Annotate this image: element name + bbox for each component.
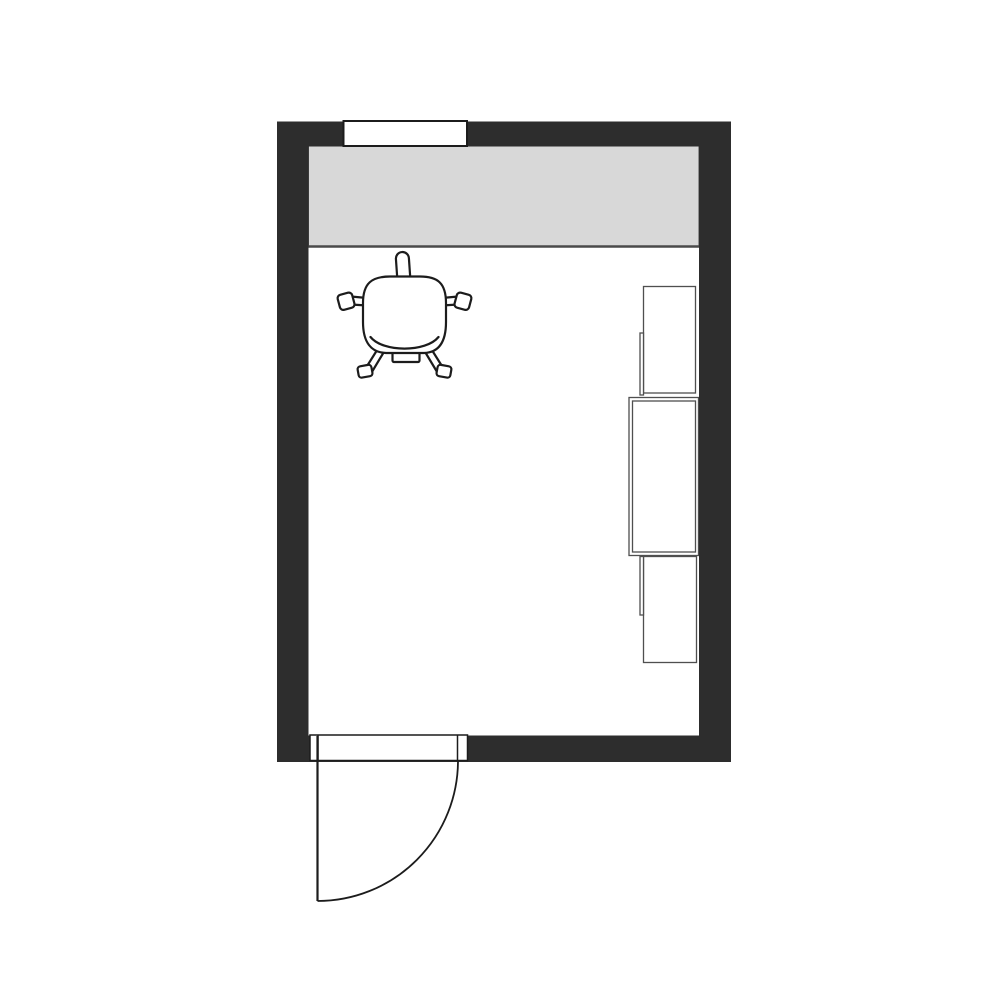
cabinet-lower[interactable]	[640, 557, 697, 663]
counter-surface	[309, 146, 700, 247]
wall-right	[699, 122, 731, 763]
counter-worktop[interactable]	[309, 146, 700, 247]
door-frame	[310, 735, 468, 761]
door-swing-arc	[318, 761, 459, 902]
cabinet-upper[interactable]	[640, 287, 696, 396]
floor-plan-page	[0, 0, 1000, 1000]
door[interactable]	[310, 735, 468, 901]
cabinet-lower-door	[640, 557, 644, 616]
cabinet-upper-door	[640, 333, 644, 395]
chair-caster	[357, 364, 373, 378]
floor-plan-canvas	[0, 0, 1000, 1000]
cabinet-middle[interactable]	[629, 398, 699, 556]
window[interactable]	[344, 121, 468, 146]
cabinet-lower-body	[644, 557, 697, 663]
chair-armrest-cap	[337, 292, 356, 311]
wall-left	[277, 122, 309, 763]
cabinet-upper-body	[644, 287, 696, 394]
cabinet-middle-body	[629, 398, 699, 556]
